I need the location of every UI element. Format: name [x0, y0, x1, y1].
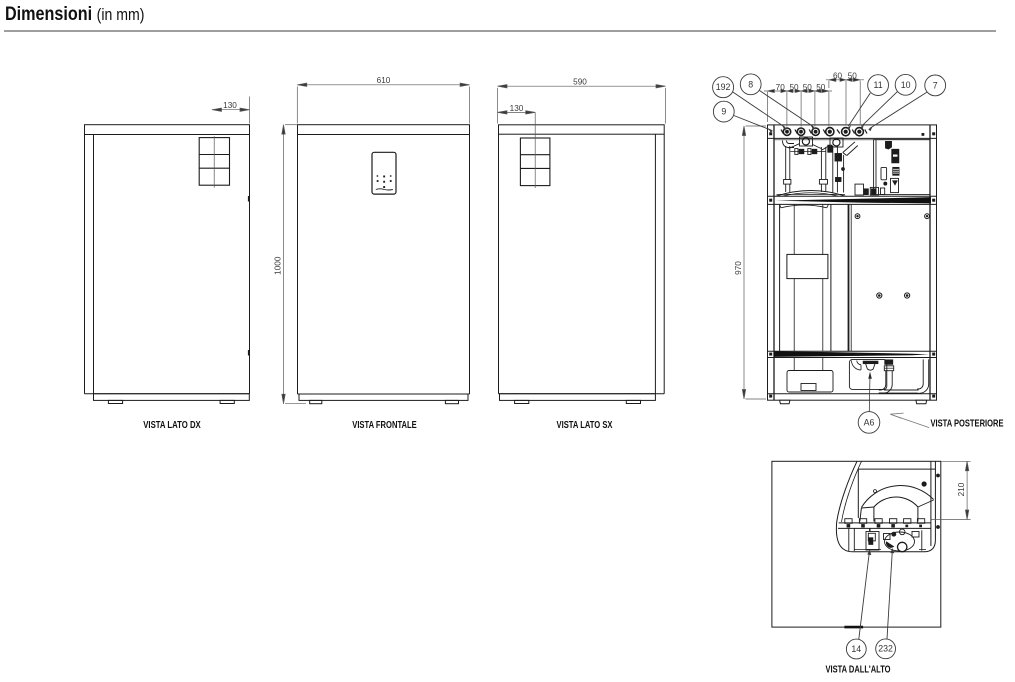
svg-text:10: 10: [901, 80, 911, 90]
svg-text:VISTA POSTERIORE: VISTA POSTERIORE: [931, 419, 1004, 430]
svg-text:590: 590: [573, 78, 587, 87]
svg-text:50: 50: [803, 83, 813, 92]
svg-text:192: 192: [716, 82, 731, 92]
svg-text:970: 970: [734, 261, 743, 275]
svg-text:VISTA LATO SX: VISTA LATO SX: [557, 420, 613, 431]
svg-text:7: 7: [933, 80, 938, 90]
svg-text:VISTA DALL'ALTO: VISTA DALL'ALTO: [826, 665, 891, 676]
svg-text:8: 8: [748, 79, 753, 89]
svg-text:9: 9: [721, 107, 726, 117]
svg-text:50: 50: [848, 72, 858, 81]
svg-text:14: 14: [851, 644, 861, 654]
svg-text:210: 210: [957, 482, 966, 496]
svg-text:70: 70: [776, 83, 786, 92]
svg-text:610: 610: [377, 76, 391, 85]
svg-text:50: 50: [816, 83, 826, 92]
svg-text:50: 50: [789, 83, 799, 92]
svg-text:1000: 1000: [274, 256, 283, 275]
svg-text:130: 130: [510, 104, 524, 113]
svg-text:VISTA FRONTALE: VISTA FRONTALE: [352, 420, 417, 431]
svg-text:Dimensioni (in mm): Dimensioni (in mm): [5, 3, 144, 25]
svg-text:130: 130: [223, 101, 237, 110]
svg-text:VISTA LATO DX: VISTA LATO DX: [143, 420, 201, 431]
svg-text:60: 60: [833, 72, 843, 81]
svg-text:232: 232: [878, 644, 893, 654]
svg-text:11: 11: [874, 80, 883, 90]
svg-text:A6: A6: [864, 417, 875, 427]
